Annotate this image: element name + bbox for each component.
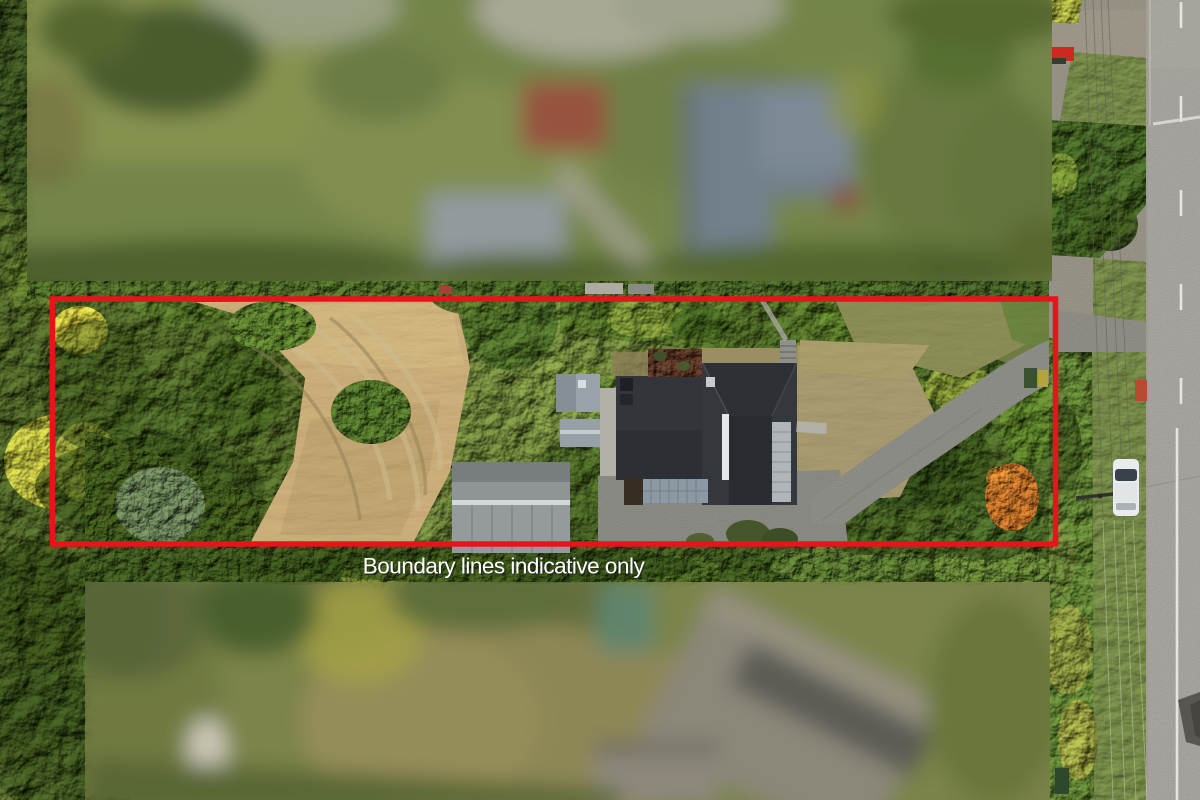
svg-text:Boundary lines indicative only: Boundary lines indicative only xyxy=(363,554,646,579)
